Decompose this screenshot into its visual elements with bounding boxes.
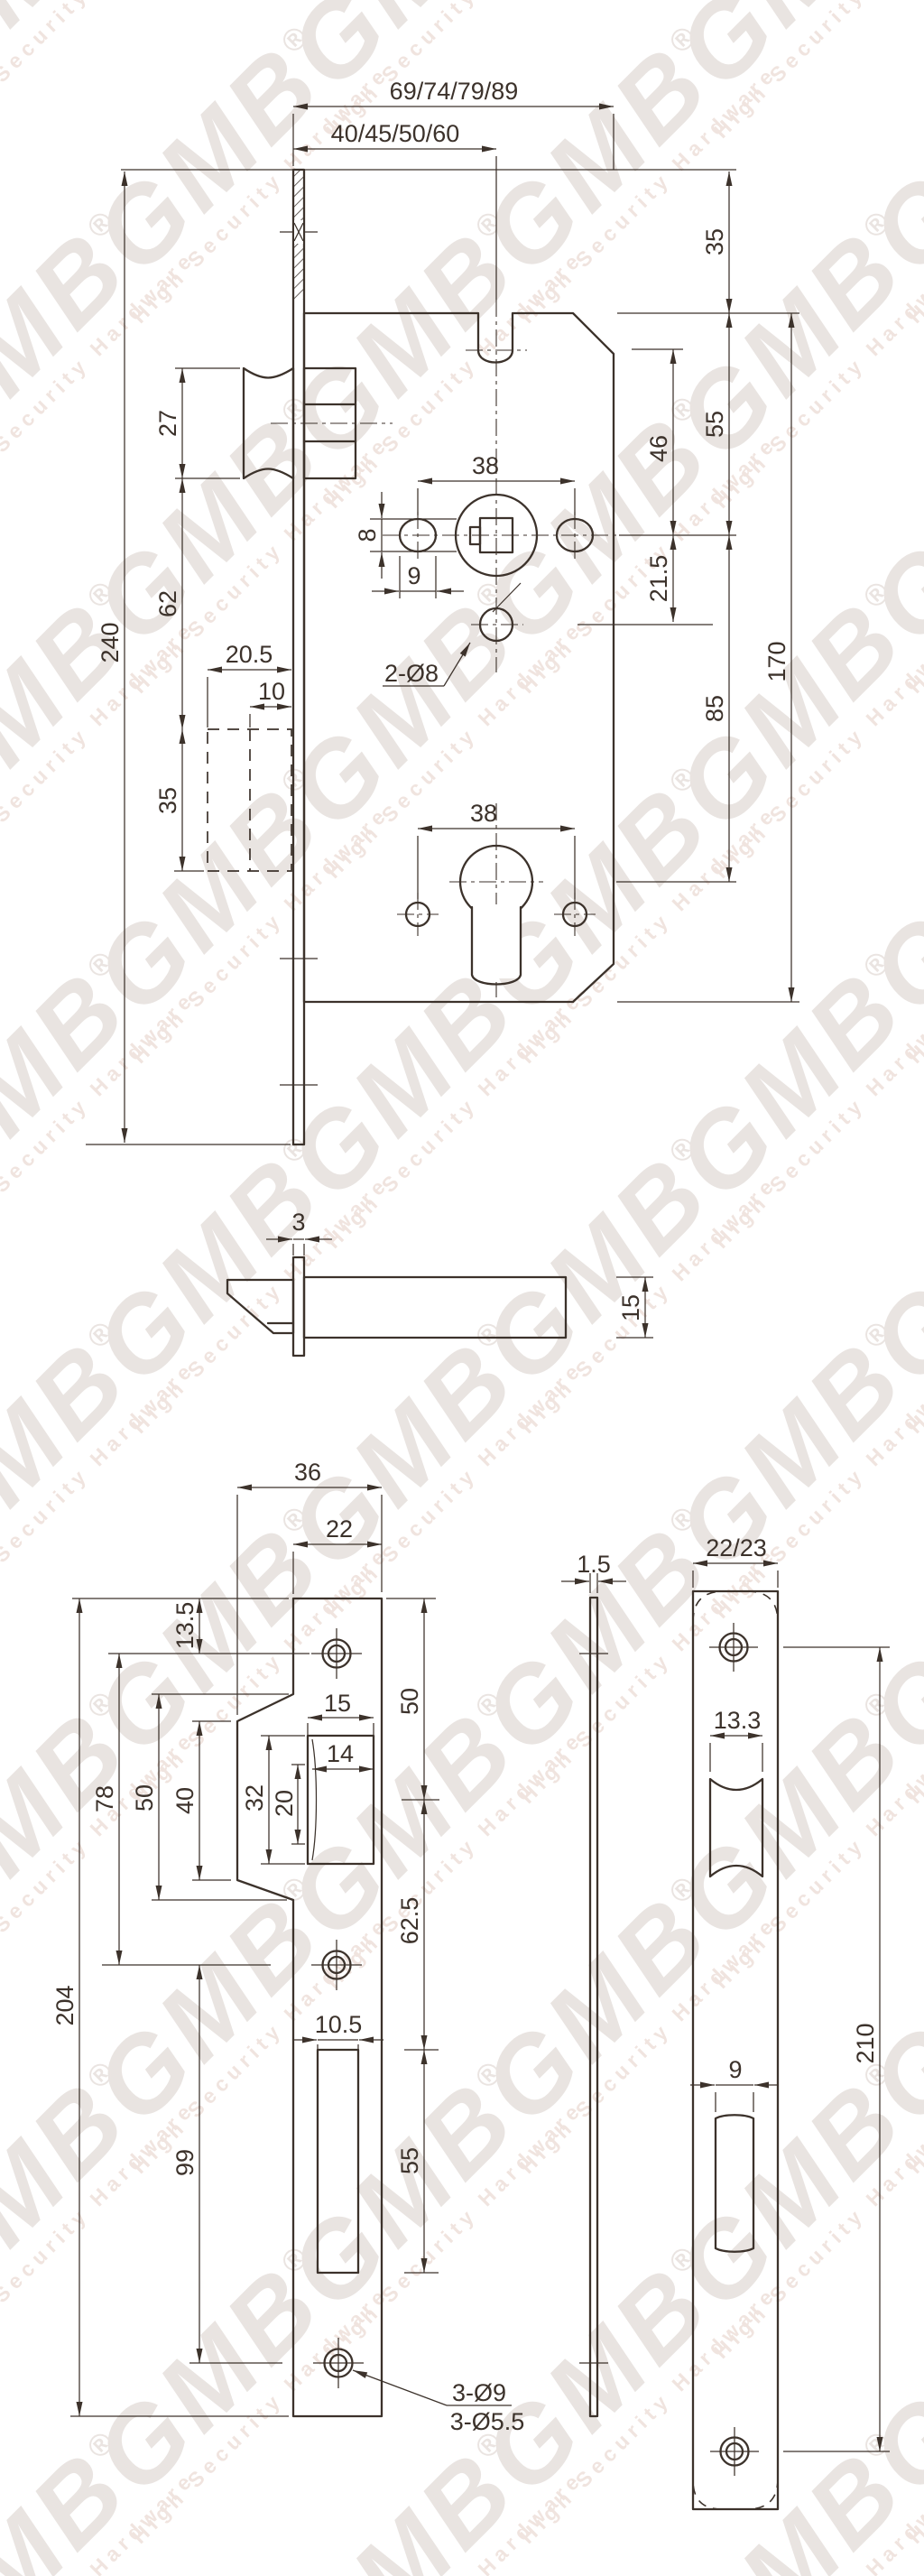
dim-bolt-slot-width: 9	[728, 2056, 742, 2083]
dim-backset-options: 40/45/50/60	[331, 120, 460, 147]
dim-latch-height: 27	[154, 410, 181, 437]
dim-total-width: 36	[294, 1459, 321, 1486]
faceplate-front	[293, 170, 304, 1144]
dim-oval-hole-width: 9	[407, 562, 420, 589]
dim-bolt-hole-width: 10.5	[315, 2011, 363, 2038]
dim-top-to-latch-center: 50	[396, 1688, 423, 1715]
dim-cylinder-hole-spacing: 38	[470, 800, 497, 827]
extension-lines	[293, 1239, 653, 1338]
strike-plate-edge	[590, 1598, 597, 2416]
lock-case-outline	[304, 313, 614, 1002]
dim-center-to-fix-hole: 21.5	[645, 555, 672, 603]
dim-faceplate-length: 240	[97, 622, 124, 663]
dim-pocket-height: 35	[154, 787, 181, 814]
dimension-lines	[266, 1239, 645, 1338]
dim-latch-hole-height: 32	[241, 1784, 268, 1812]
dim-pocket-inner: 10	[258, 678, 285, 705]
dim-case-height: 170	[763, 641, 790, 681]
dim-screw-span-lower: 99	[171, 2149, 199, 2176]
dim-latch-to-pocket: 62	[154, 590, 181, 617]
lock-case-front-view: 69/74/79/89 40/45/50/60 35 55 46 21.5 85…	[86, 78, 799, 1144]
dim-latch-slot-width: 13.3	[714, 1707, 762, 1734]
dim-case-side-height: 15	[617, 1294, 644, 1321]
dim-latch-hole-inner: 14	[327, 1740, 354, 1767]
extension-lines	[693, 1571, 890, 2451]
extension-lines	[70, 1495, 512, 2416]
dim-pocket-depth: 20.5	[226, 641, 273, 668]
dim-plate-length: 204	[51, 1985, 79, 2025]
deadbolt-slot	[716, 2115, 753, 2252]
dim-chamfer-to-center: 46	[645, 435, 672, 462]
screw-centerline-ticks	[579, 1654, 608, 2363]
faceplate-bar-side	[293, 1257, 304, 1356]
dim-flat-width-options: 22/23	[706, 1534, 767, 1561]
dim-screw-span-upper: 78	[91, 1785, 118, 1812]
hole-callout: 2-Ø8	[384, 660, 439, 687]
dim-latch-center-to-bolt: 62.5	[396, 1897, 423, 1945]
flat-plate-front-view: 22/23 13.3 9 210	[690, 1534, 890, 2509]
case-side	[304, 1277, 566, 1338]
dim-plate-width: 22	[326, 1515, 353, 1543]
strike-plate-outline	[237, 1598, 382, 2416]
dim-screw-spacing: 210	[852, 2023, 879, 2063]
technical-drawing-page: GMB®High Security HardwareGMB®High Secur…	[0, 0, 924, 2576]
deadbolt-opening	[318, 2050, 358, 2273]
faceplate-side-view: 3 15	[227, 1209, 653, 1356]
dimension-lines	[79, 1487, 447, 2416]
latch-slot	[710, 1779, 762, 1876]
dim-bolt-hole-height: 55	[396, 2147, 423, 2174]
dim-top-to-screw: 13.5	[171, 1602, 199, 1650]
dim-lip-straight-length: 40	[171, 1787, 199, 1814]
extension-lines	[86, 114, 799, 1144]
cylinder-stem-mask	[473, 904, 520, 978]
dim-tongue-span: 20	[271, 1790, 298, 1817]
dim-depth-options: 69/74/79/89	[390, 78, 519, 105]
dim-latch-hole-width: 15	[324, 1690, 351, 1717]
dim-center-to-cylinder: 85	[701, 695, 728, 722]
dim-oval-hole-height: 8	[354, 528, 381, 542]
dim-lip-length: 50	[131, 1784, 158, 1812]
dim-top-margin: 35	[701, 228, 728, 255]
latch-bolt-side	[227, 1280, 293, 1333]
screw-holes	[709, 1623, 759, 2476]
strike-plate-front-view: 36 22 13.5 78 50 40 204 99 15 14 32 20 1…	[51, 1459, 524, 2435]
dim-spindle-hole-spacing: 38	[472, 452, 499, 479]
dim-top-to-center: 55	[701, 411, 728, 438]
strike-plate-side-view: 1.5	[561, 1551, 626, 2416]
screw-callout-inner: 3-Ø5.5	[450, 2408, 525, 2435]
mortise-lock-drawing: 69/74/79/89 40/45/50/60 35 55 46 21.5 85…	[0, 0, 924, 2576]
dim-faceplate-thickness: 3	[291, 1209, 305, 1236]
latch-tongue-curve	[312, 1739, 317, 1860]
screw-callout-outer: 3-Ø9	[452, 2379, 506, 2406]
dimension-lines	[690, 1563, 880, 2451]
dim-strike-thickness: 1.5	[577, 1551, 611, 1578]
